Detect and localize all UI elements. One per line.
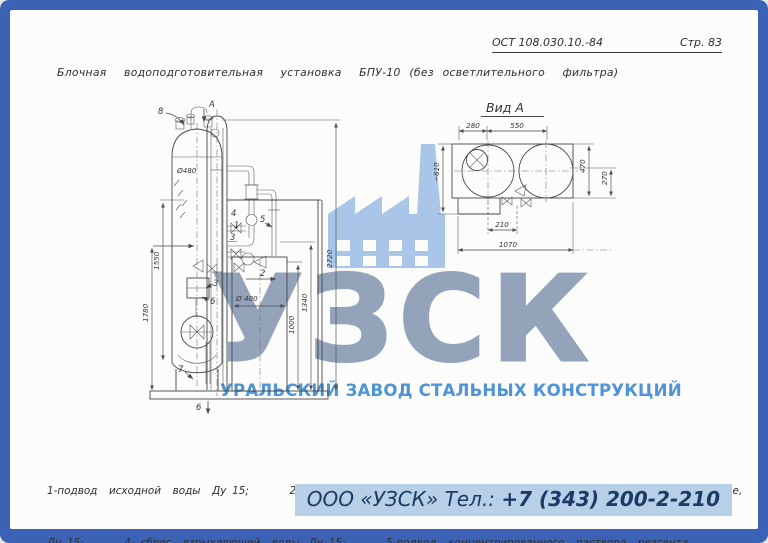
dim-210: 210: [495, 220, 509, 229]
callout-3: 3: [230, 232, 235, 242]
elevation-dimensions: 2720 1340 1000 1550 1780: [141, 120, 340, 390]
dim-1780: 1780: [141, 303, 150, 322]
phone-number: +7 (343) 200-2-210: [501, 487, 720, 511]
dim-1070: 1070: [499, 240, 518, 249]
callout-5: 5: [260, 214, 265, 224]
view-a: Вид А 280 5: [432, 100, 616, 254]
dim-270: 270: [600, 171, 609, 185]
callout-3b: 3: [213, 278, 218, 288]
dim-1000: 1000: [287, 315, 296, 334]
callout-1: 1: [234, 220, 239, 230]
view-a-title: Вид А: [486, 100, 524, 115]
page-number: Стр. 83: [680, 36, 722, 49]
dim-470: 470: [578, 159, 587, 173]
vessel-diameter-label: Ø480: [176, 166, 197, 175]
elevation-view: Ø480: [141, 99, 340, 414]
note-line-2: Ду 15; 4- сброс взрыхляющей воды, Ду 15;…: [47, 535, 742, 543]
callout-6: 6: [210, 296, 215, 306]
callout-7: 7: [178, 364, 184, 374]
dim-2720: 2720: [325, 249, 334, 268]
footer-contact: ООО «УЗСК» Тел.: +7 (343) 200-2-210: [295, 484, 732, 516]
dim-1550: 1550: [152, 251, 161, 270]
header: ОСТ 108.030.10.-84 Стр. 83: [492, 36, 722, 53]
standard-number: ОСТ 108.030.10.-84: [492, 36, 603, 49]
phone-label: Тел.:: [445, 487, 495, 511]
callout-4: 4: [231, 208, 236, 218]
piping: [227, 166, 280, 272]
callout-2: 2: [260, 268, 265, 278]
dim-610: ~610: [432, 162, 441, 182]
scanned-drawing-frame: УЗСК УРАЛЬСКИЙ ЗАВОД СТАЛЬНЫХ КОНСТРУКЦИ…: [0, 0, 768, 543]
dim-280: 280: [466, 121, 480, 130]
view-a-arrow-label: А: [208, 99, 215, 109]
dim-diam-400: Ø 400: [235, 294, 258, 303]
dim-1340: 1340: [300, 293, 309, 312]
callout-6b: 6: [196, 402, 201, 412]
callout-8: 8: [158, 106, 163, 116]
document-page: УЗСК УРАЛЬСКИЙ ЗАВОД СТАЛЬНЫХ КОНСТРУКЦИ…: [10, 10, 758, 529]
drawing-title: Блочная водоподготовительная установка Б…: [57, 66, 618, 79]
company-name: ООО «УЗСК»: [307, 487, 438, 511]
dim-550: 550: [510, 121, 524, 130]
view-a-dimensions: 280 550 ~610 470 270 210: [432, 121, 616, 254]
